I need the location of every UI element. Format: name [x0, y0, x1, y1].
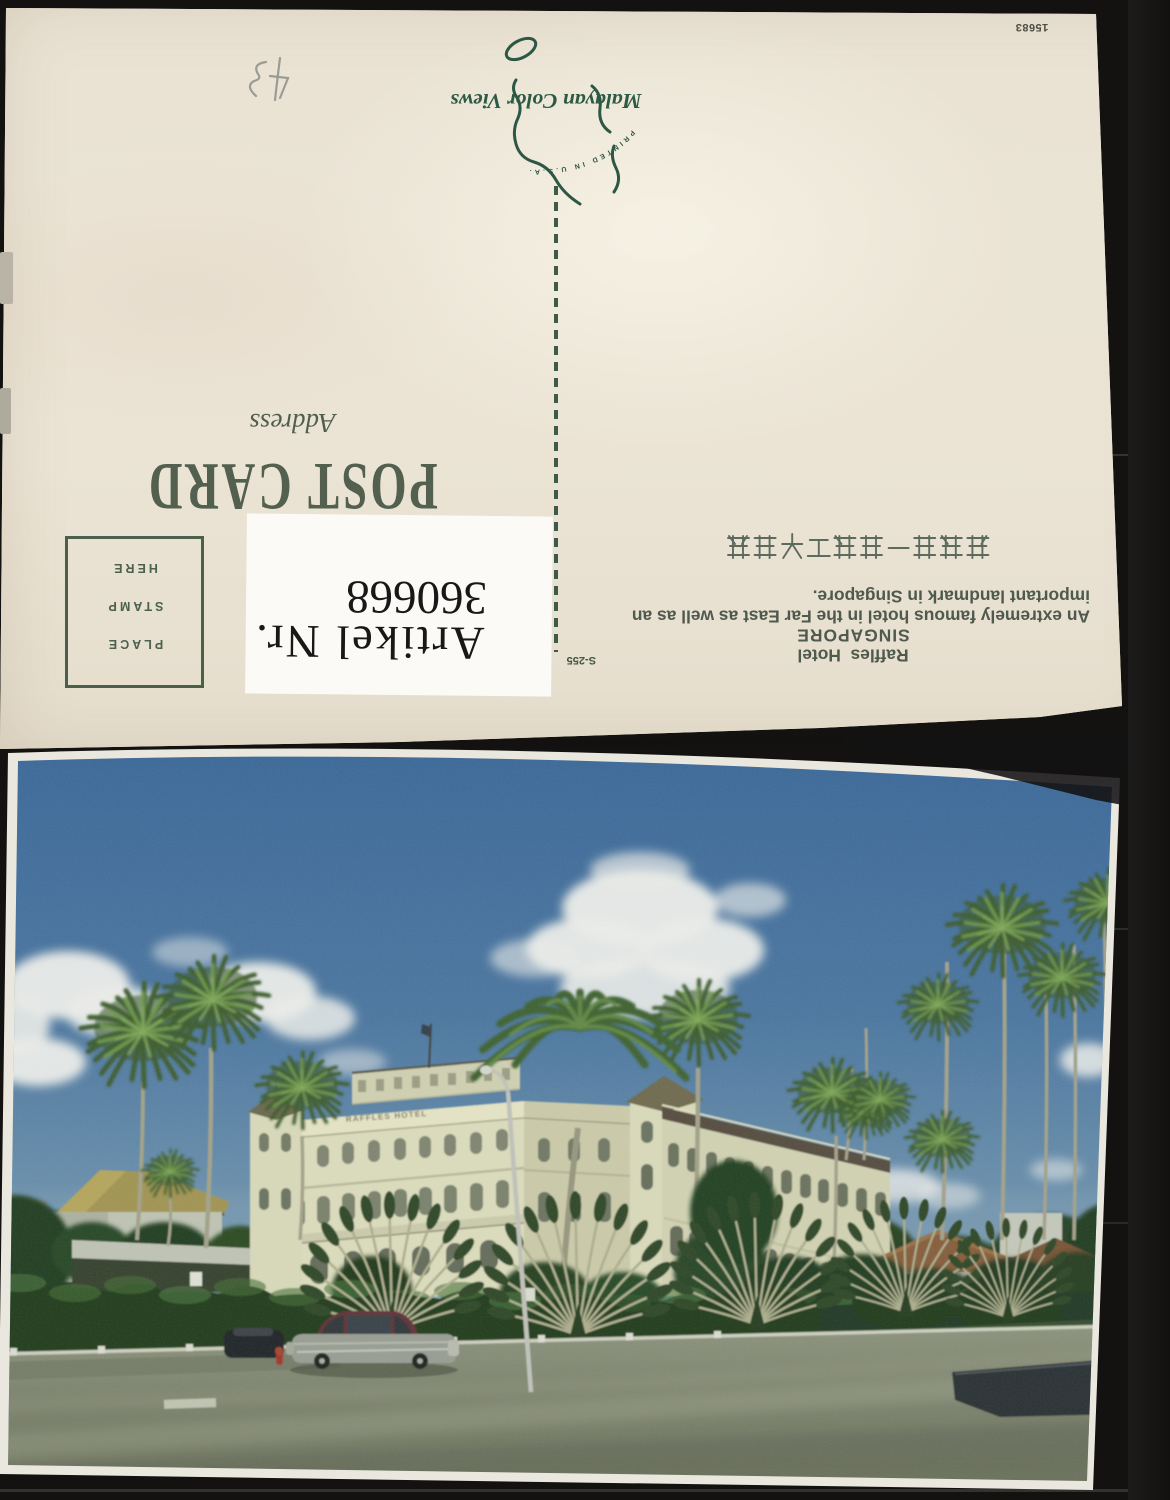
svg-text:PRINTED IN U.S.A.: PRINTED IN U.S.A. [526, 129, 635, 175]
svg-text:Malayan Color Views: Malayan Color Views [450, 89, 642, 113]
